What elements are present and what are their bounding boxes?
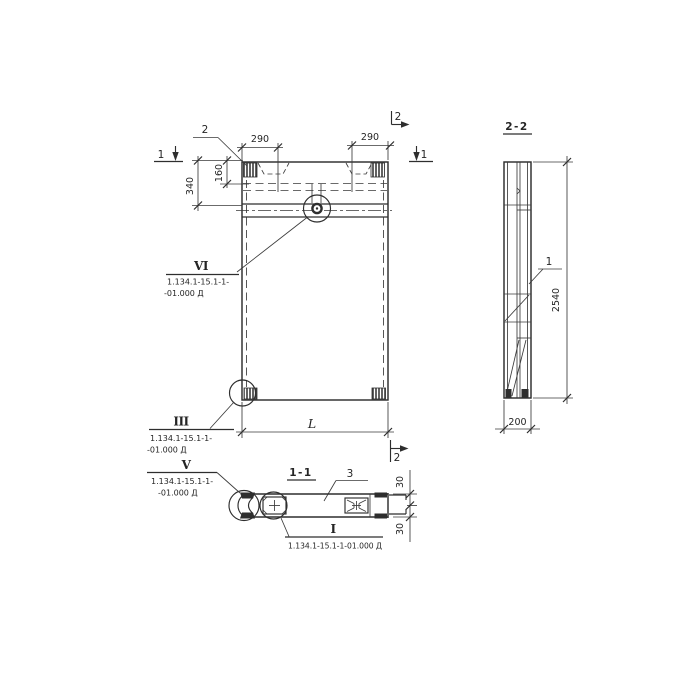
top-recess-left [258, 163, 289, 174]
drawing-page: 290 290 340 160 [0, 0, 700, 700]
detail-iii-doc-line1: 1.134.1-15.1-1- [150, 434, 212, 443]
detail-label-iii: III 1.134.1-15.1-1- -01.000 Д [147, 415, 234, 455]
hidden-edge-lines [243, 184, 387, 204]
leader-item-3-label: 3 [347, 468, 354, 480]
technical-drawing: 290 290 340 160 [0, 0, 700, 700]
detail-i-doc-line: 1.134.1-15.1-1-01.000 Д [288, 542, 382, 551]
detail-v-numeral: V [181, 458, 192, 472]
section-mark-2-bottom: 2 [391, 440, 409, 464]
dim-160-label: 160 [214, 164, 225, 182]
detail-circle-vi [237, 195, 331, 272]
leader-item-2-label: 2 [202, 124, 209, 136]
detail-label-i: I 1.134.1-15.1-1-01.000 Д [281, 518, 383, 551]
section-mark-1-right-label: 1 [421, 149, 428, 161]
dim-200-label: 200 [508, 417, 526, 428]
section-mark-1-right: 1 [409, 146, 433, 162]
section-1-1-view: 1-1 3 [147, 458, 417, 551]
top-anchor-pads [244, 163, 385, 177]
leader-item-1-label: 1 [546, 256, 553, 268]
section-mark-2-bottom-label: 2 [394, 452, 401, 464]
section-2-2-view: 2-2 1 [495, 121, 573, 434]
section-2-2-title-label: 2-2 [505, 121, 528, 133]
front-view: 290 290 340 160 [147, 111, 433, 464]
detail-circle-iii [210, 380, 256, 429]
detail-label-vi: VI 1.134.1-15.1-1- -01.000 Д [164, 259, 239, 298]
dim-length-label: L [307, 416, 316, 431]
leader-item-2: 2 [193, 124, 247, 166]
detail-v-doc-line2: -01.000 Д [158, 489, 198, 498]
dim-290-right-label: 290 [361, 132, 379, 143]
section-2-2-profile [504, 162, 531, 398]
dim-length: L [236, 402, 394, 438]
dim-290-left-label: 290 [251, 134, 269, 145]
dim-340-label: 340 [185, 177, 196, 195]
dim-30-top-label: 30 [395, 476, 406, 488]
dim-30-group: 30 30 [393, 470, 417, 542]
section-1-1-title-label: 1-1 [289, 467, 312, 479]
dim-2540-label: 2540 [551, 288, 562, 312]
dim-200: 200 [495, 400, 540, 434]
top-recess-right [346, 163, 372, 174]
section-mark-2-top-label: 2 [395, 111, 402, 123]
section-mark-1-left: 1 [154, 146, 183, 162]
dim-2540: 2540 [533, 156, 573, 404]
section-mark-1-left-label: 1 [158, 149, 165, 161]
section-1-1-title: 1-1 [287, 467, 316, 480]
bottom-anchor-pads [244, 388, 386, 399]
dim-30-bottom-label: 30 [395, 523, 406, 535]
section-mark-2-top: 2 [392, 111, 410, 128]
detail-vi-doc-line1: 1.134.1-15.1-1- [167, 278, 229, 287]
leader-item-1: 1 [529, 256, 562, 284]
detail-vi-numeral: VI [193, 259, 209, 273]
detail-label-v: V 1.134.1-15.1-1- -01.000 Д [147, 458, 240, 498]
detail-iii-doc-line2: -01.000 Д [147, 446, 187, 455]
detail-i-numeral: I [330, 522, 336, 536]
leader-item-3: 3 [324, 468, 368, 501]
detail-iii-numeral: III [173, 415, 189, 429]
section-2-2-title: 2-2 [503, 121, 532, 134]
panel-outline [242, 162, 388, 400]
detail-vi-doc-line2: -01.000 Д [164, 289, 204, 298]
detail-v-doc-line1: 1.134.1-15.1-1- [151, 477, 213, 486]
